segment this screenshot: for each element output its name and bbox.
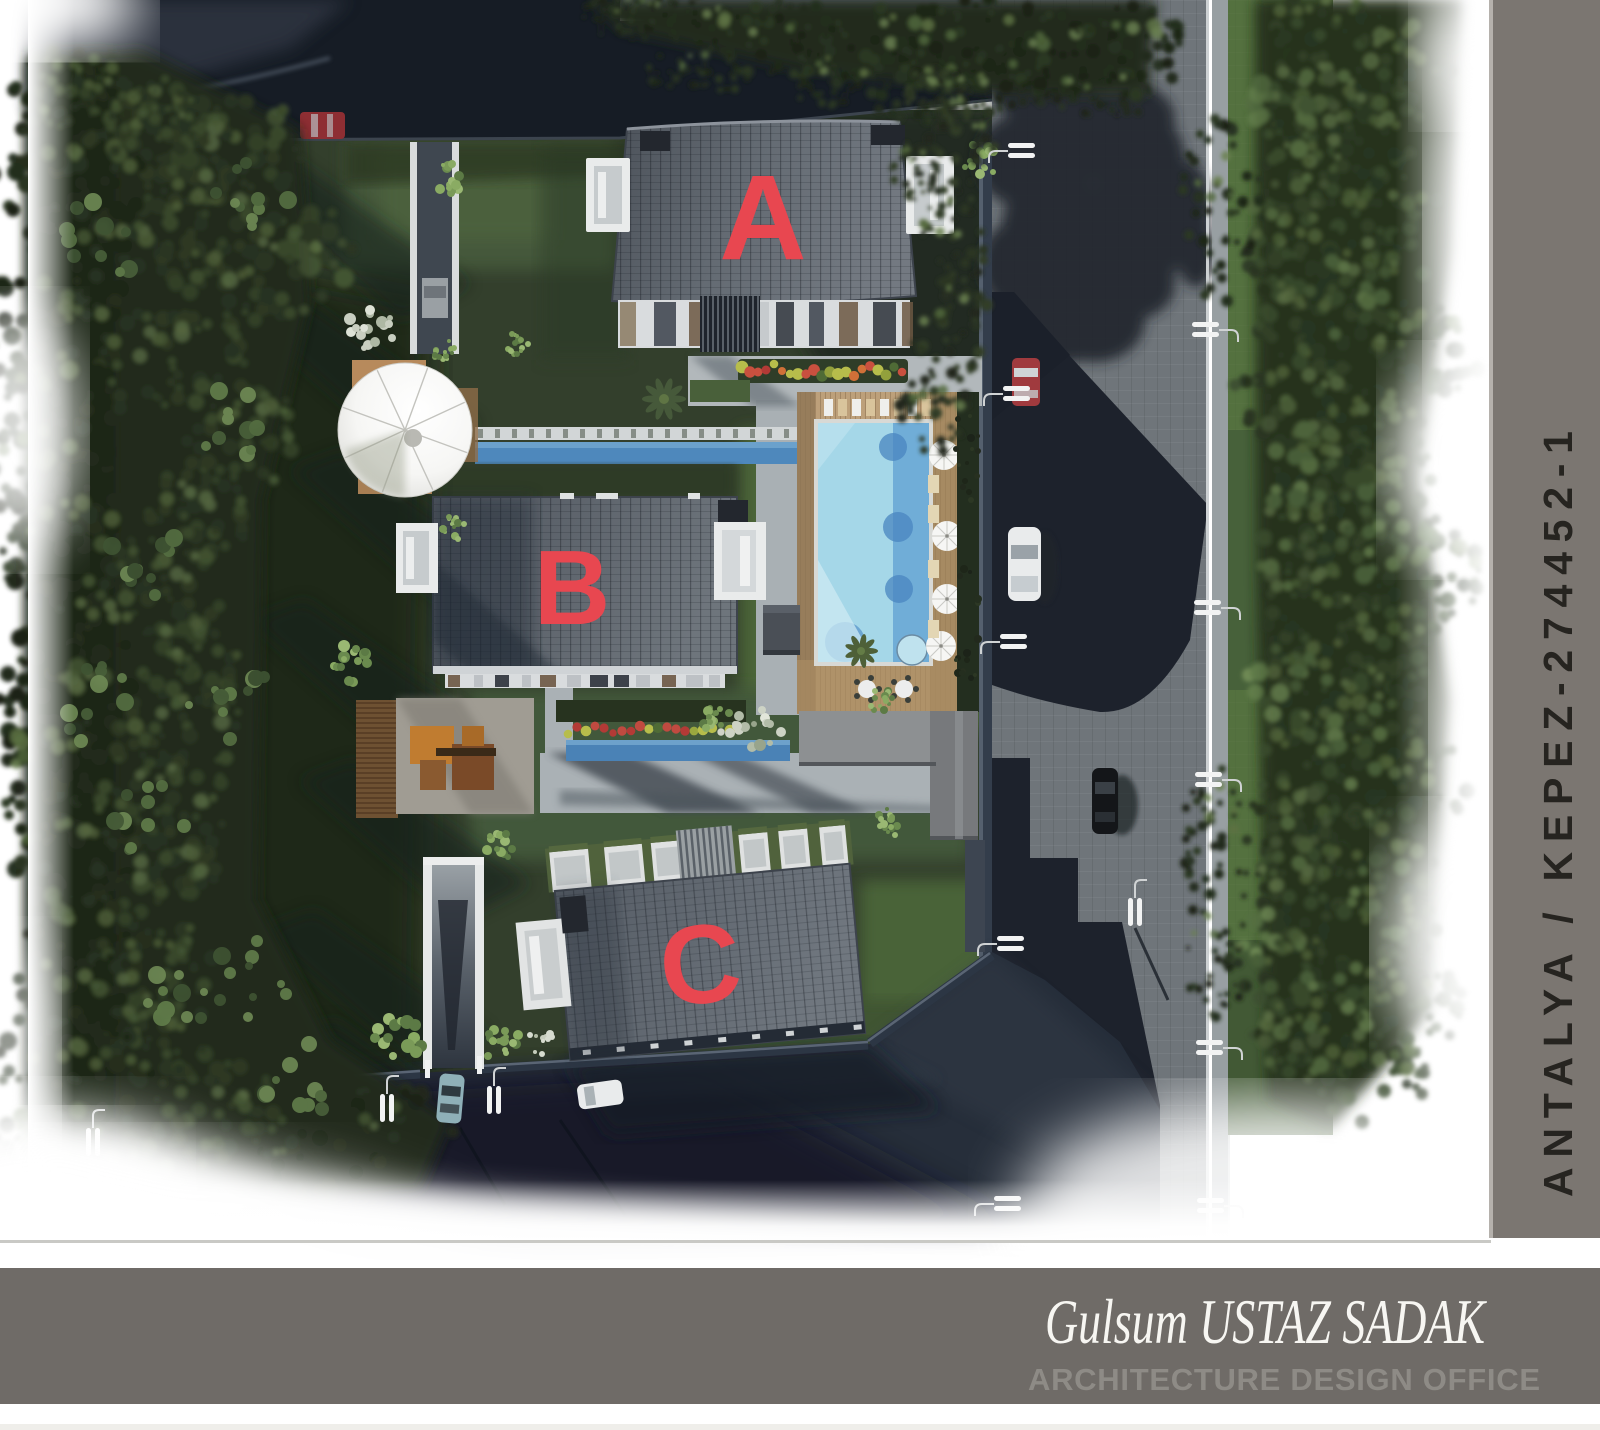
svg-text:C: C bbox=[654, 898, 746, 1030]
svg-text:B: B bbox=[534, 529, 611, 647]
svg-text:Gulsum USTAZ SADAK: Gulsum USTAZ SADAK bbox=[1045, 1286, 1487, 1357]
svg-text:A: A bbox=[719, 149, 806, 285]
svg-text:ANTALYA / KEPEZ-274452-1: ANTALYA / KEPEZ-274452-1 bbox=[1535, 422, 1581, 1197]
svg-text:ARCHITECTURE DESIGN OFFICE: ARCHITECTURE DESIGN OFFICE bbox=[1028, 1362, 1546, 1397]
